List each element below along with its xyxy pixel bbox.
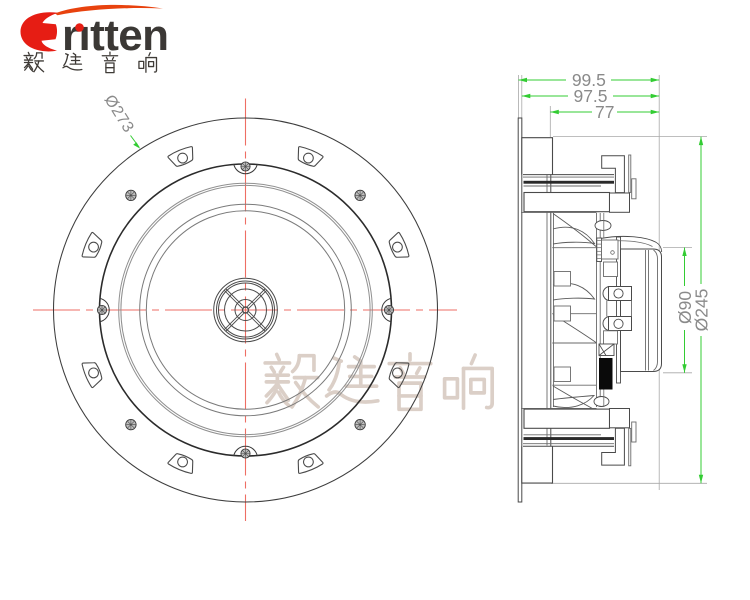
svg-text:Ø245: Ø245 (691, 289, 711, 332)
svg-text:Ø273: Ø273 (101, 92, 137, 136)
svg-text:rıtten: rıtten (62, 11, 168, 60)
svg-text:77: 77 (595, 102, 614, 122)
